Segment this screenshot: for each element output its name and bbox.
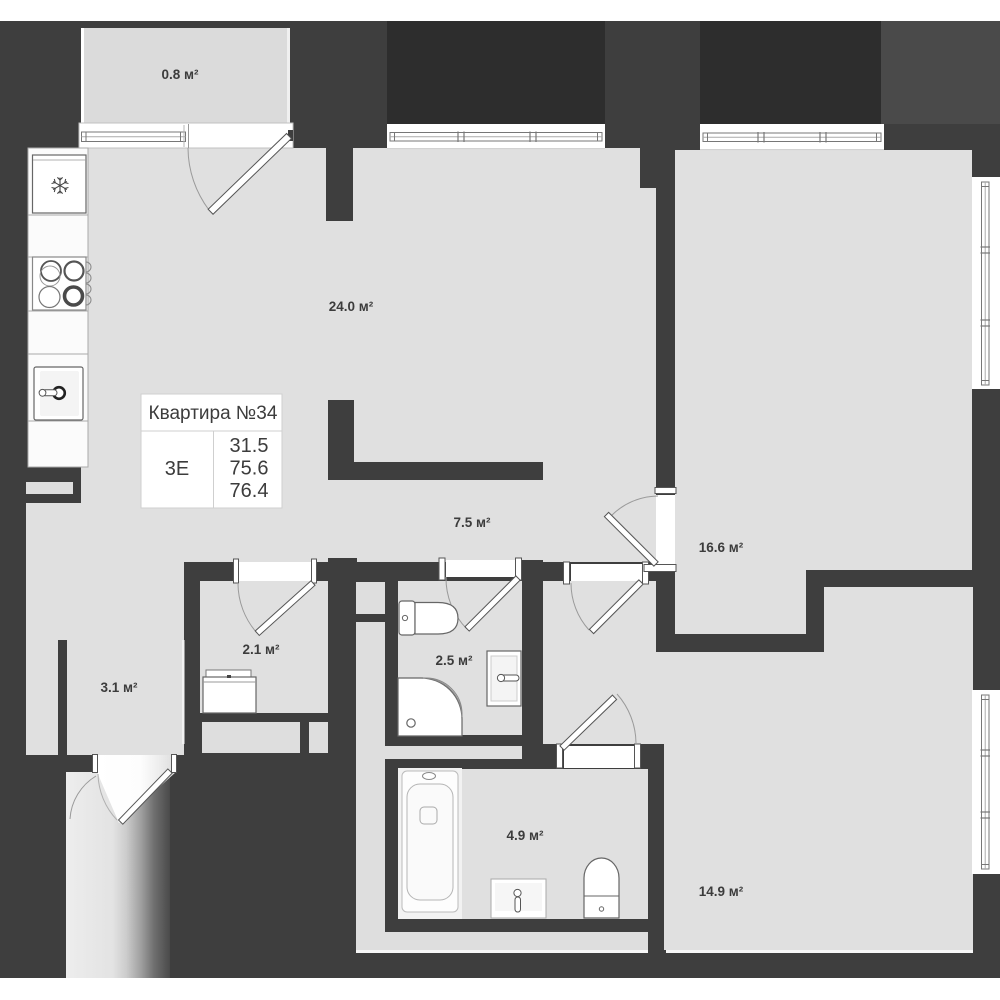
svg-text:7.5 м²: 7.5 м²	[454, 515, 492, 530]
svg-text:3Е: 3Е	[165, 458, 189, 480]
svg-text:2.5 м²: 2.5 м²	[436, 653, 474, 668]
svg-text:31.5: 31.5	[230, 435, 269, 457]
svg-text:76.4: 76.4	[230, 480, 269, 502]
svg-text:0.8 м²: 0.8 м²	[162, 67, 200, 82]
svg-text:2.1 м²: 2.1 м²	[243, 642, 281, 657]
svg-text:14.9 м²: 14.9 м²	[699, 884, 744, 899]
svg-text:4.9 м²: 4.9 м²	[507, 828, 545, 843]
svg-text:Квартира №34: Квартира №34	[149, 403, 278, 424]
svg-text:16.6 м²: 16.6 м²	[699, 540, 744, 555]
svg-text:24.0 м²: 24.0 м²	[329, 299, 374, 314]
svg-text:3.1 м²: 3.1 м²	[101, 680, 139, 695]
svg-text:75.6: 75.6	[230, 458, 269, 480]
